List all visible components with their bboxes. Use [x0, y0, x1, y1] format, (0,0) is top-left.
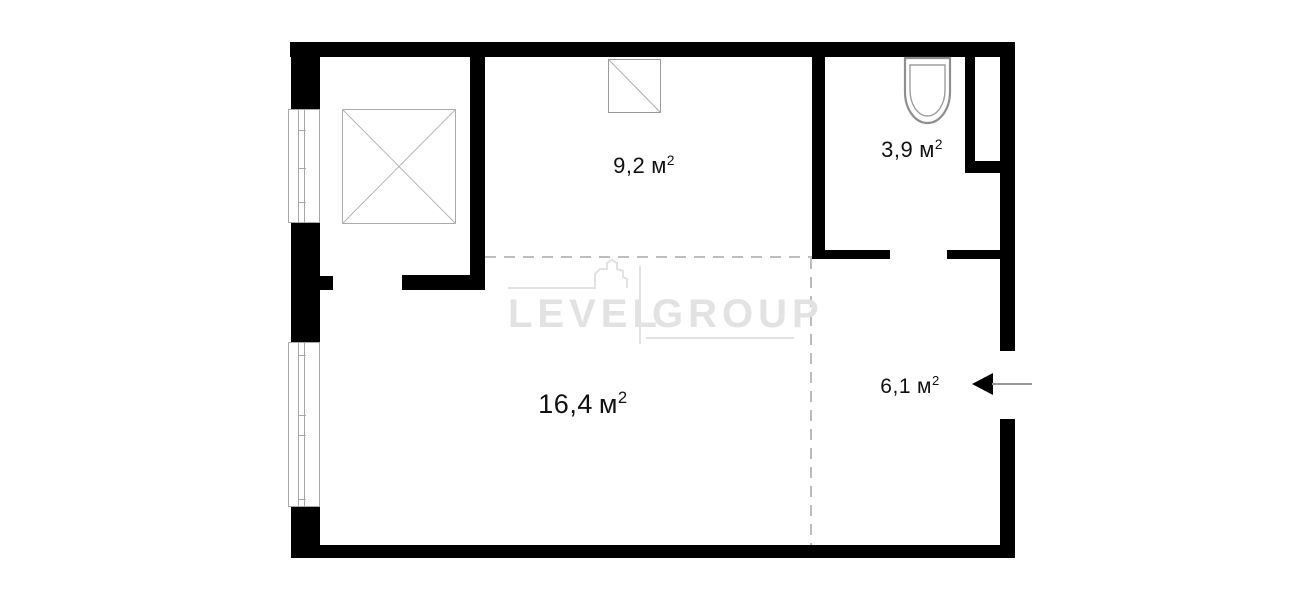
room-label-6-1: 6,1м2 [880, 373, 939, 399]
wall-bathroom-left [812, 57, 825, 258]
window-tick [298, 355, 306, 356]
area-unit: м [599, 389, 618, 419]
wall-bathroom-bottom-right [947, 250, 1003, 259]
entrance-arrow-line [992, 383, 1032, 385]
area-unit: м [917, 375, 932, 398]
toilet-icon [903, 56, 952, 126]
window-pane-line [304, 343, 305, 506]
watermark-text-level: LEVEL [508, 294, 662, 334]
floor-plan: LEVEL GROUP 9,2м2 3,9м2 16,4м2 6,1м2 [0, 0, 1303, 600]
area-sup: 2 [932, 373, 940, 388]
vent-shaft-icon [608, 59, 661, 113]
area-value: 16,4 [538, 389, 593, 419]
window-tick [298, 499, 306, 500]
window-pane-line [298, 110, 299, 222]
window-symbol-lower [288, 342, 320, 507]
wall-left-mid-stub [320, 276, 333, 290]
wall-left-top-block [291, 42, 320, 109]
area-value: 9,2 [613, 153, 645, 178]
watermark-text-group: GROUP [652, 294, 824, 334]
room-label-16-4: 16,4м2 [538, 388, 627, 420]
window-symbol-upper [288, 109, 320, 223]
room-label-9-2: 9,2м2 [613, 153, 675, 179]
wall-left-bottom-block [291, 507, 320, 558]
wall-niche-vertical [965, 57, 975, 173]
area-unit: м [651, 153, 667, 178]
area-value: 6,1 [880, 375, 911, 398]
window-tick [298, 130, 306, 131]
wall-niche-stub [965, 161, 1000, 173]
wall-right-upper [1000, 42, 1015, 351]
wall-bottom [291, 545, 1015, 558]
wall-closet-right [470, 57, 485, 290]
window-tick [298, 435, 306, 436]
window-tick [298, 168, 306, 169]
area-value: 3,9 [881, 137, 913, 162]
window-pane-line [304, 110, 305, 222]
area-sup: 2 [667, 153, 675, 168]
room-label-3-9: 3,9м2 [881, 137, 943, 163]
area-sup: 2 [935, 137, 943, 152]
wall-bathroom-bottom-left [812, 250, 890, 259]
window-tick [298, 415, 306, 416]
entrance-arrow-icon [972, 373, 993, 395]
window-tick [298, 202, 306, 203]
area-unit: м [919, 137, 935, 162]
wall-closet-bottom-stub [402, 275, 485, 290]
wall-top [290, 42, 1015, 57]
area-sup: 2 [618, 388, 628, 407]
level-group-watermark: LEVEL GROUP [500, 258, 800, 353]
crossed-shaft-icon [342, 109, 456, 224]
window-pane-line [298, 343, 299, 506]
wall-left-mid-block [291, 223, 320, 342]
wall-right-lower [1000, 419, 1015, 558]
